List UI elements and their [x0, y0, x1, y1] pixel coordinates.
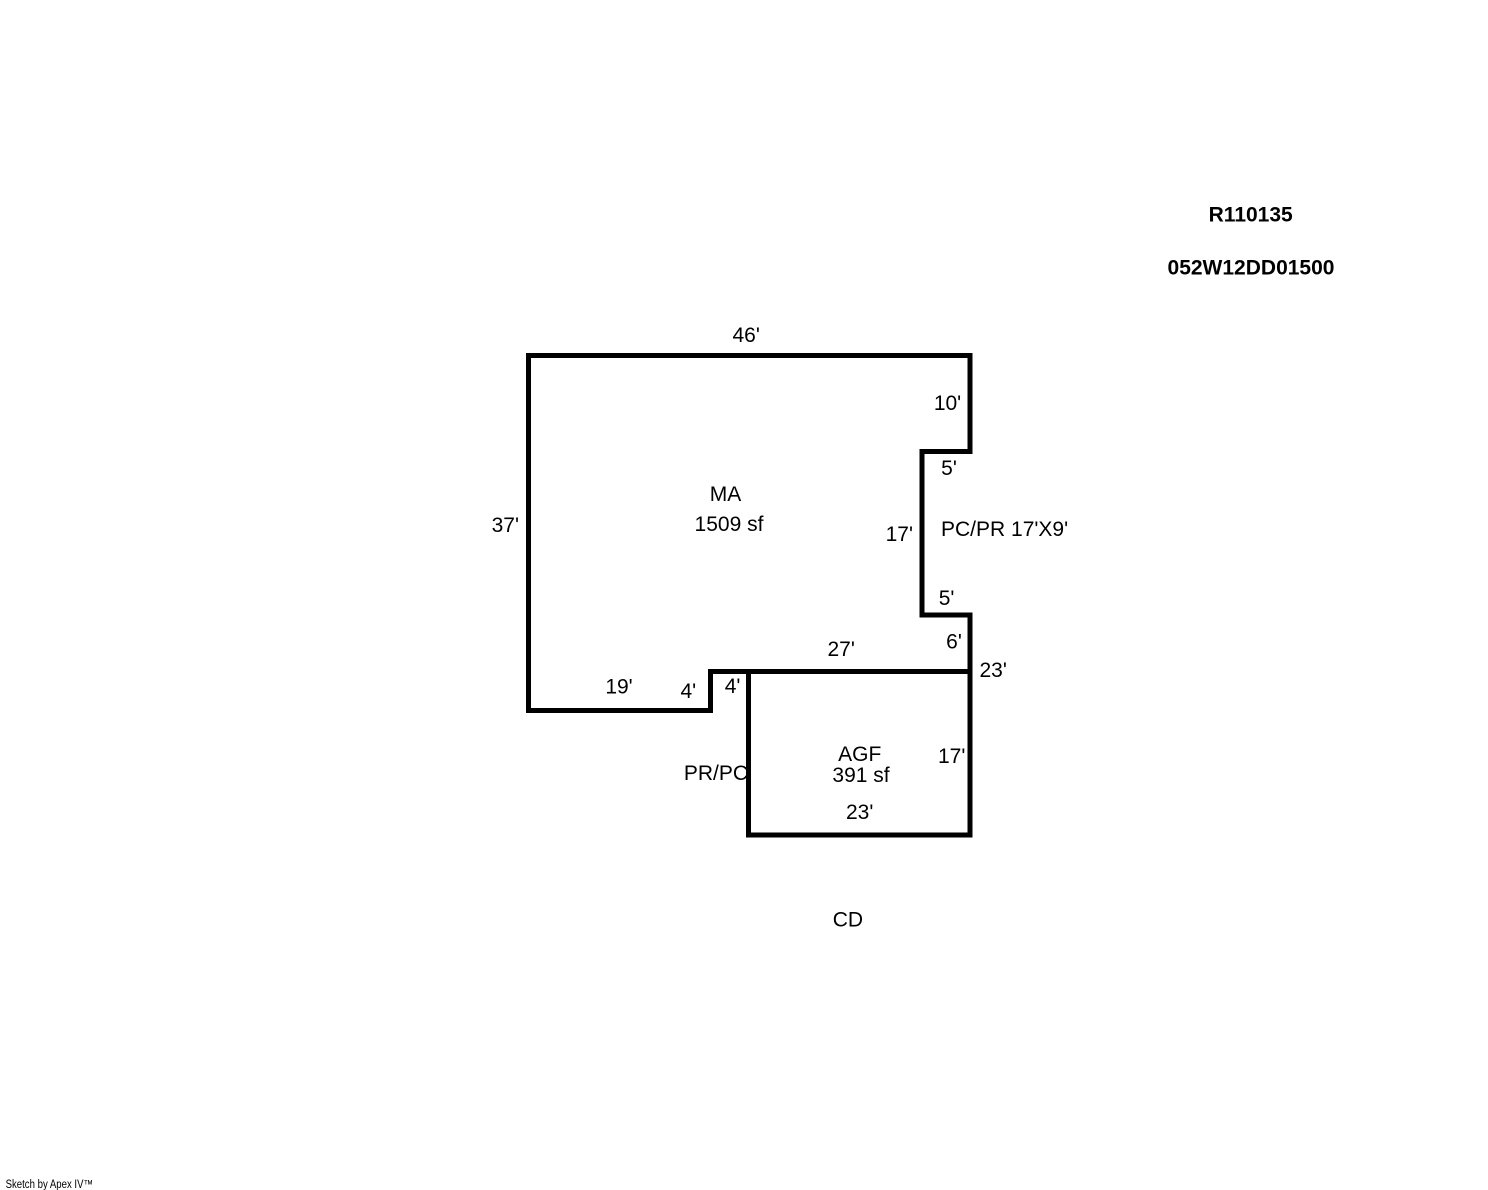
svg-text:37': 37'	[492, 514, 519, 537]
svg-text:17': 17'	[938, 745, 965, 768]
svg-text:23': 23'	[980, 659, 1007, 682]
svg-text:17': 17'	[886, 523, 913, 546]
svg-text:46': 46'	[733, 324, 760, 347]
svg-text:R110135: R110135	[1209, 203, 1293, 226]
svg-text:5': 5'	[939, 587, 955, 610]
svg-text:5': 5'	[941, 457, 957, 480]
svg-text:391 sf: 391 sf	[832, 764, 889, 787]
svg-text:CD: CD	[833, 908, 863, 931]
svg-text:4': 4'	[680, 680, 696, 703]
svg-text:6': 6'	[946, 631, 962, 654]
svg-text:MA: MA	[710, 483, 742, 506]
svg-text:PR/PC: PR/PC	[684, 762, 748, 785]
svg-text:4': 4'	[725, 675, 741, 698]
svg-text:AGF: AGF	[838, 743, 881, 766]
svg-text:27': 27'	[828, 638, 855, 661]
svg-text:19': 19'	[605, 676, 632, 699]
svg-text:Sketch by Apex IV™: Sketch by Apex IV™	[6, 1179, 94, 1190]
svg-text:23': 23'	[846, 801, 873, 824]
svg-text:052W12DD01500: 052W12DD01500	[1168, 257, 1335, 280]
svg-text:10': 10'	[934, 392, 961, 415]
svg-text:PC/PR 17'X9': PC/PR 17'X9'	[941, 518, 1068, 541]
svg-text:1509 sf: 1509 sf	[695, 513, 764, 536]
